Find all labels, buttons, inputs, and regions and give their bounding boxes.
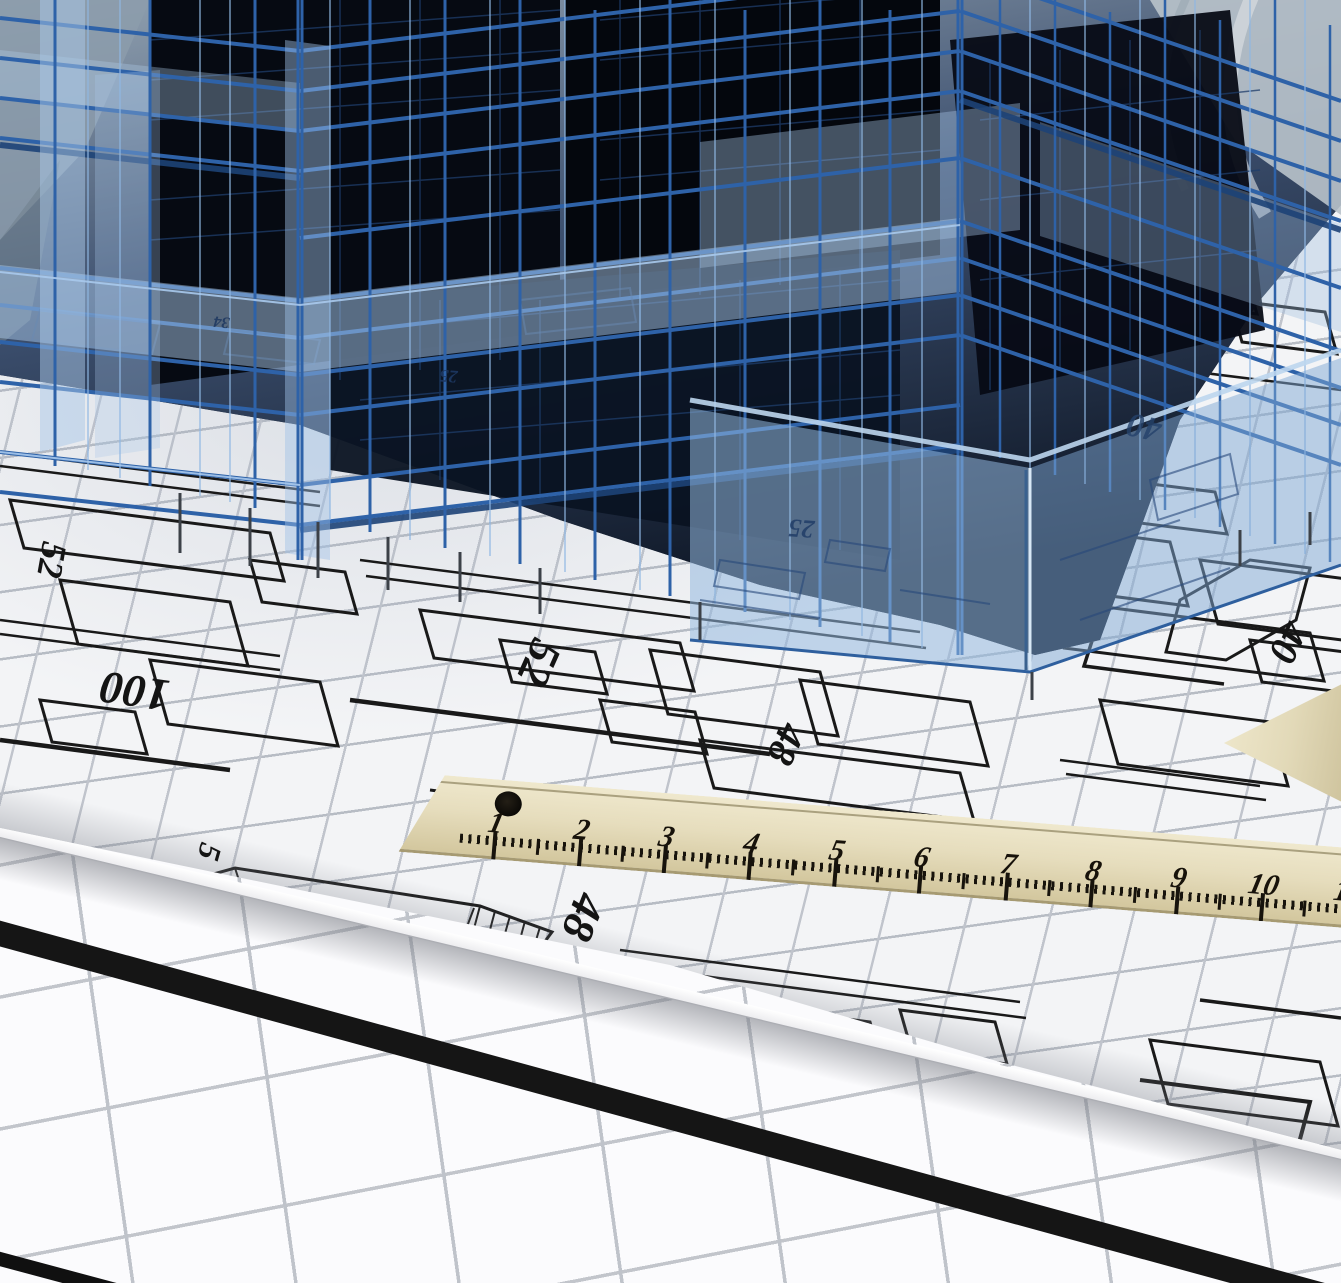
ruler-half-tick bbox=[536, 839, 540, 855]
architectural-blueprint-scene: 52 100 52 48 40 48 5 7 bbox=[0, 0, 1341, 1283]
wireframe-building-model: 34 25 25 40 bbox=[0, 0, 1341, 700]
ruler-half-tick bbox=[1218, 894, 1222, 910]
glass-label-25-right: 25 bbox=[787, 513, 816, 544]
glass-label-34: 34 bbox=[213, 312, 232, 331]
ruler-half-tick bbox=[1133, 887, 1137, 903]
ruler-half-tick bbox=[961, 873, 965, 889]
ruler-half-tick bbox=[621, 846, 625, 862]
ruler-half-tick bbox=[876, 866, 880, 882]
ruler-half-tick bbox=[791, 859, 795, 875]
glass-label-25-left: 25 bbox=[439, 366, 459, 387]
ruler-half-tick bbox=[705, 852, 709, 868]
ruler-half-tick bbox=[1302, 900, 1306, 916]
ruler-half-tick bbox=[1047, 880, 1051, 896]
